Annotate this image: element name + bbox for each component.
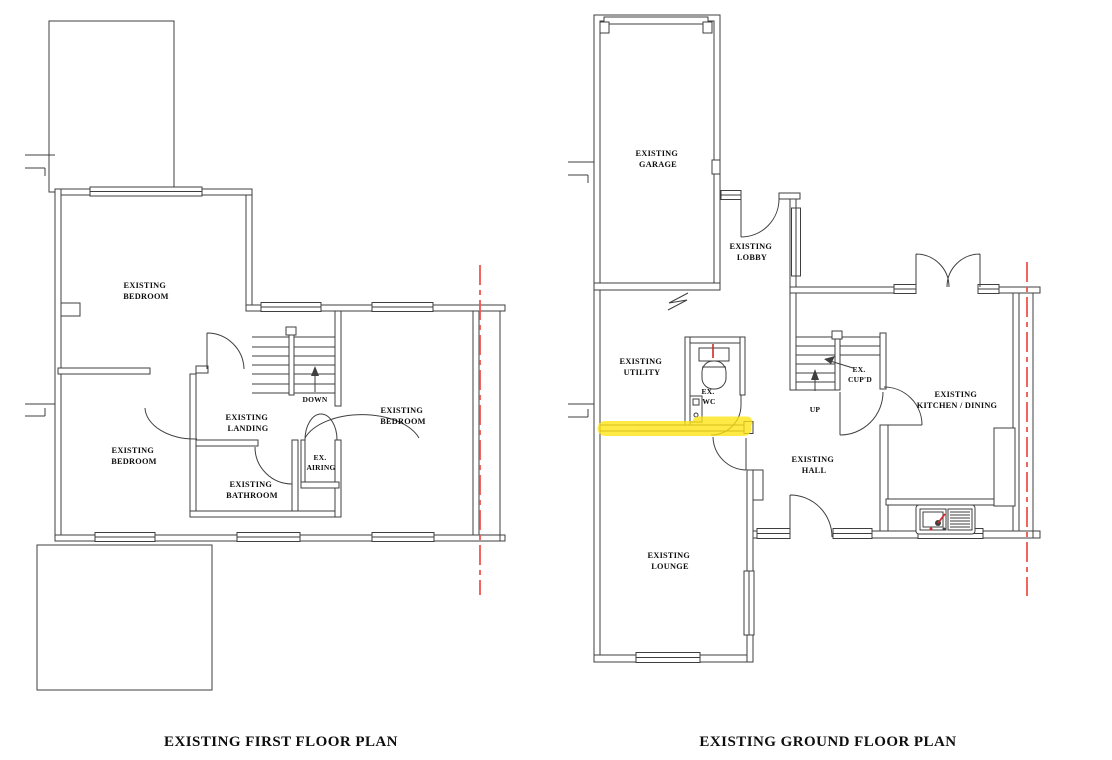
ff-stairs (252, 327, 335, 395)
window (372, 533, 434, 542)
window (90, 187, 202, 196)
door-lobby (741, 199, 779, 237)
label-ff-landing: EXISTING LANDING (226, 413, 271, 433)
window (721, 191, 741, 200)
label-gf-cupboard: EX. CUP'D (848, 365, 872, 384)
cupboard-leader-arrow (824, 356, 835, 364)
door-lounge (713, 437, 746, 470)
door-bedroom-top-left (207, 333, 244, 369)
window (237, 533, 300, 542)
label-ff-airing: EX. AIRING (306, 453, 335, 472)
door-bedroom-bottom-left (145, 408, 197, 439)
window (636, 653, 700, 663)
wall-highlight-marker (605, 422, 747, 429)
window (978, 285, 999, 294)
first-floor-title: EXISTING FIRST FLOOR PLAN (164, 734, 398, 750)
label-gf-lounge: EXISTING LOUNGE (648, 551, 693, 571)
gf-step-symbol (668, 293, 688, 310)
kitchen-counter (886, 428, 1015, 506)
ff-footprint-outlines (37, 21, 212, 690)
door-under-stairs-cupboard (840, 392, 883, 435)
door-bathroom (255, 447, 292, 484)
gf-walls (568, 15, 1040, 662)
label-gf-hall: EXISTING HALL (792, 455, 837, 475)
toilet (699, 344, 729, 389)
floor-plans-svg: EXISTING BEDROOM EXISTING BEDROOM EXISTI… (0, 0, 1112, 760)
gf-party-wall-break-lower (568, 404, 594, 417)
label-gf-up: UP (810, 405, 821, 414)
label-ff-down: DOWN (303, 395, 328, 404)
label-ff-bedroom-bottom-left: EXISTING BEDROOM (111, 446, 157, 466)
window (744, 571, 754, 635)
label-gf-utility: EXISTING UTILITY (620, 357, 665, 377)
label-ff-bathroom: EXISTING BATHROOM (226, 480, 278, 500)
drawing-sheet: EXISTING BEDROOM EXISTING BEDROOM EXISTI… (0, 0, 1112, 760)
up-arrow-head (811, 369, 819, 380)
label-gf-kitchen: EXISTING KITCHEN / DINING (917, 390, 998, 410)
ff-party-wall-break-lower (25, 404, 55, 416)
gf-party-wall-break-upper (568, 162, 594, 183)
kitchen-sink (916, 505, 975, 534)
ground-floor-plan: EXISTING GARAGE EXISTING LOBBY EXISTING … (568, 15, 1040, 750)
window (261, 303, 321, 312)
window (95, 533, 155, 542)
ground-floor-title: EXISTING GROUND FLOOR PLAN (699, 734, 956, 750)
door-front (790, 495, 832, 537)
window (833, 529, 872, 539)
window (757, 529, 790, 539)
label-gf-wc: EX. WC (702, 387, 717, 406)
window (372, 303, 433, 312)
window (792, 208, 801, 276)
label-ff-bedroom-right: EXISTING BEDROOM (380, 406, 426, 426)
down-arrow-head (311, 366, 319, 376)
first-floor-plan: EXISTING BEDROOM EXISTING BEDROOM EXISTI… (25, 21, 505, 750)
label-gf-lobby: EXISTING LOBBY (730, 242, 775, 262)
label-ff-bedroom-top-left: EXISTING BEDROOM (123, 281, 169, 301)
door-french-doors (916, 254, 980, 287)
window (894, 285, 916, 294)
door-airing-cupboard (305, 414, 337, 440)
ff-party-wall-break-upper (25, 155, 55, 176)
